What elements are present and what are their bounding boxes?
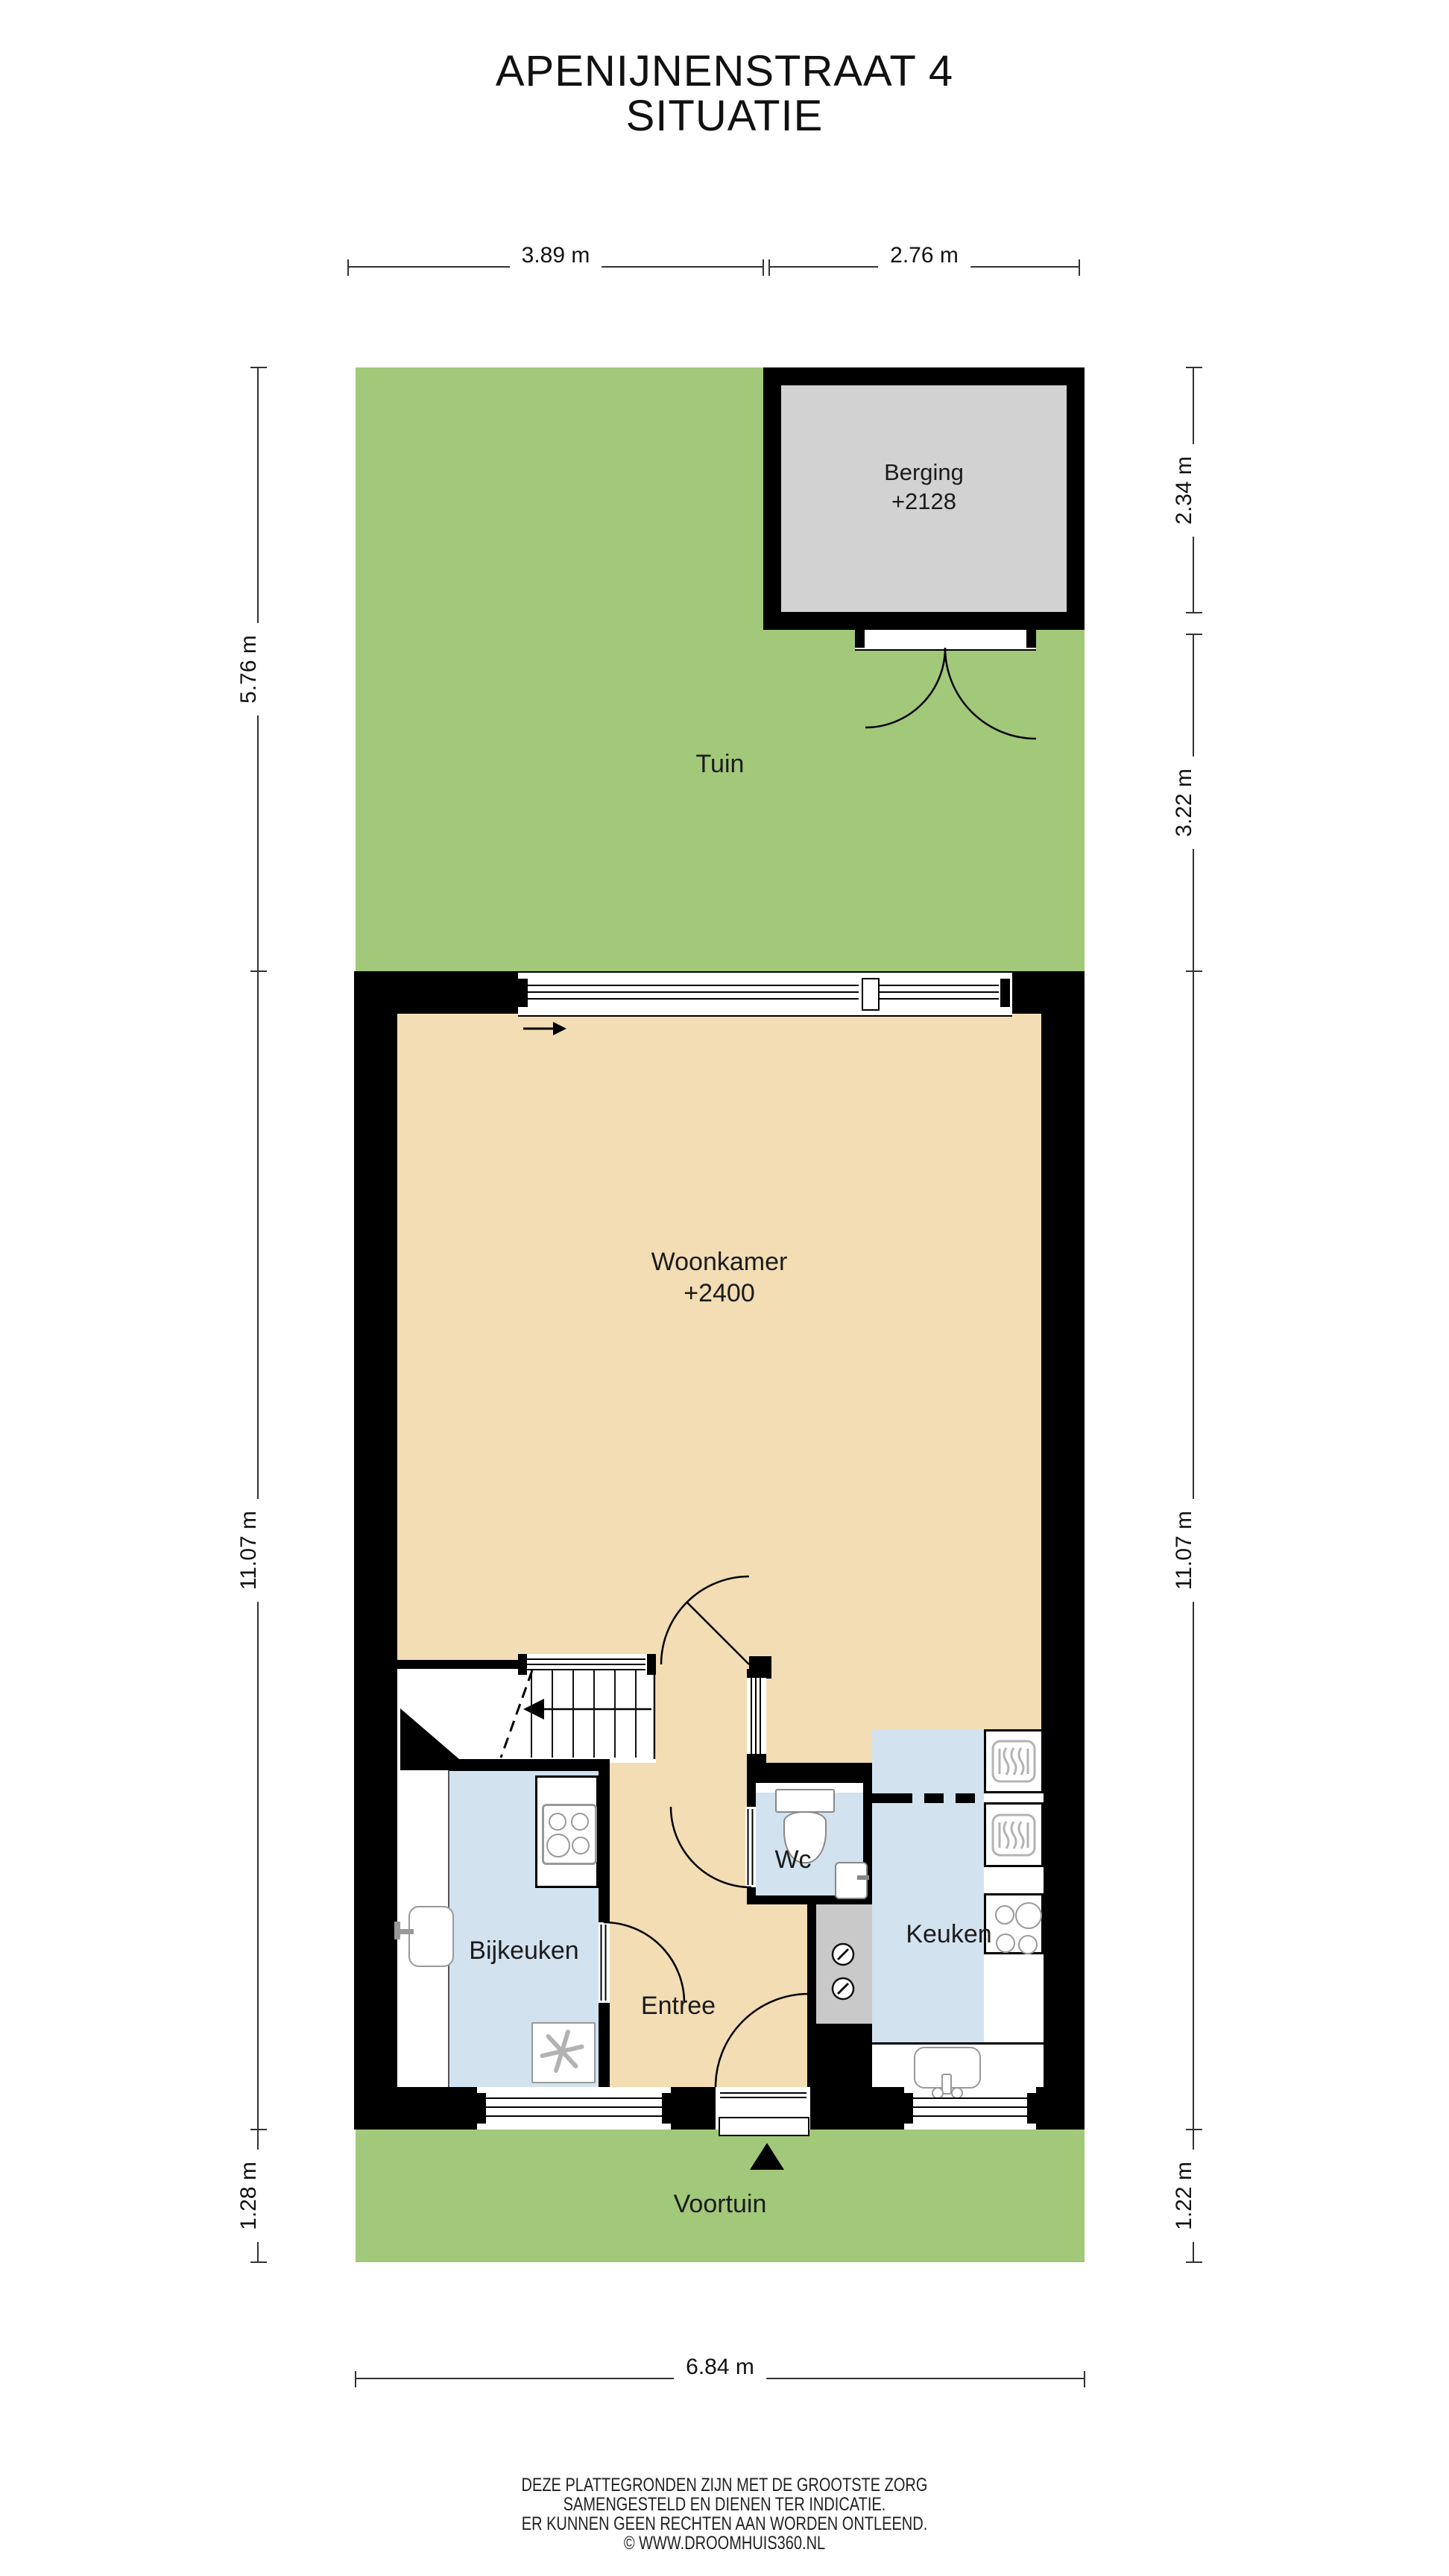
entree-floor — [610, 1763, 747, 2087]
interior-window-cap-left — [518, 1654, 527, 1675]
bijkeuken-tap — [399, 1929, 414, 1934]
bijkeuken-wall-lower — [599, 2003, 610, 2087]
oven-lower — [984, 1802, 1044, 1867]
dim-top-1-label: 3.89 m — [510, 243, 602, 268]
dim-left-3: 1.28 m — [257, 2130, 259, 2262]
bijkeuken-hob-burner-icon — [546, 1834, 570, 1857]
ventilation-box — [531, 2022, 596, 2083]
footer-disclaimer-line3: ER KUNNEN GEEN RECHTEN AAN WORDEN ONTLEE… — [145, 2515, 1304, 2534]
dim-right-3: 11.07 m — [1193, 971, 1194, 2130]
bijkeuken-hob — [542, 1804, 597, 1865]
bijkeuken-door-leaf — [599, 1922, 610, 2003]
bijkeuken-window-cap-left — [477, 2093, 486, 2124]
keuken-window-cap-right — [1027, 2093, 1036, 2124]
footer-disclaimer-line1: DEZE PLATTEGRONDEN ZIJN MET DE GROOTSTE … — [145, 2476, 1304, 2495]
label-tuin: Tuin — [356, 748, 1085, 780]
dim-top-2-label: 2.76 m — [878, 243, 970, 268]
hall-floor — [656, 1660, 749, 1763]
dim-top-1: 3.89 m — [348, 266, 763, 268]
wall-right — [1041, 971, 1085, 2130]
wc-sink-icon — [835, 1862, 868, 1899]
dim-left-1-label: 5.76 m — [236, 623, 262, 716]
sliding-door-mullion — [862, 978, 880, 1011]
wall-block-below-meter — [807, 2024, 872, 2087]
dim-right-2-label: 3.22 m — [1172, 757, 1197, 849]
label-keuken: Keuken — [880, 1919, 1018, 1950]
keuken-sink-handle — [951, 2087, 963, 2099]
wc-door-leaf — [745, 1807, 756, 1887]
staircase-area — [397, 1669, 656, 1759]
dim-right-1: 2.34 m — [1193, 367, 1194, 613]
label-berging-name: Berging — [781, 458, 1067, 487]
label-wc: Wc — [756, 1844, 830, 1875]
interior-window-cap-right — [647, 1654, 656, 1675]
dim-left-2: 11.07 m — [257, 971, 259, 2130]
bijkeuken-wall-upper — [599, 1770, 610, 1922]
dim-bottom-1: 6.84 m — [356, 2378, 1085, 2379]
hall-floor-strip — [766, 1729, 872, 1763]
wall-top-right-corner — [1012, 971, 1085, 1014]
hall-window-cap-top — [747, 1669, 766, 1678]
bijkeuken-hob-burner-icon — [549, 1813, 566, 1831]
dim-left-3-label: 1.28 m — [236, 2150, 262, 2242]
label-bijkeuken: Bijkeuken — [449, 1935, 599, 1966]
dim-right-4-label: 1.22 m — [1172, 2150, 1197, 2242]
oven-upper — [984, 1729, 1044, 1793]
keuken-window-cap-left — [904, 2093, 913, 2124]
keuken-window — [904, 2087, 1036, 2130]
front-door-leaf — [718, 2090, 809, 2100]
stairs-bottom-wall — [400, 1759, 610, 1771]
label-entree: Entree — [610, 1990, 747, 2021]
sliding-door-cap-left — [518, 979, 528, 1007]
label-voortuin: Voortuin — [356, 2188, 1085, 2220]
footer-disclaimer-line2: SAMENGESTELD EN DIENEN TER INDICATIE. — [145, 2495, 1304, 2514]
wall-top-left — [354, 971, 518, 1014]
meter-cabinet — [816, 1904, 872, 2024]
wall-left — [354, 971, 397, 2130]
wc-wall-top — [747, 1763, 872, 1783]
label-woonkamer: Woonkamer +2400 — [397, 1246, 1041, 1309]
berging-door-cap-left — [855, 628, 865, 648]
woonkamer-floor — [397, 1014, 1041, 1660]
footer-copyright: © WWW.DROOMHUIS360.NL — [145, 2534, 1304, 2553]
dim-left-2-label: 11.07 m — [236, 1499, 262, 1602]
hall-vertical-window — [747, 1669, 766, 1763]
bijkeuken-hob-burner-icon — [572, 1837, 590, 1854]
keuken-hob-burner-icon — [1018, 1935, 1038, 1954]
wc-sink-tap — [857, 1875, 869, 1880]
bijkeuken-window-cap-right — [662, 2093, 671, 2124]
dim-left-1: 5.76 m — [257, 367, 259, 971]
entrance-triangle-icon — [750, 2143, 784, 2170]
bijkeuken-sink-icon — [408, 1906, 454, 1967]
dim-right-4: 1.22 m — [1193, 2130, 1194, 2262]
entree-floor-right — [747, 1904, 807, 2087]
berging-door-sill — [855, 628, 1036, 651]
front-door-step — [719, 2117, 809, 2136]
bijkeuken-window — [477, 2087, 671, 2130]
dim-right-2: 3.22 m — [1193, 634, 1194, 971]
label-woonkamer-level: +2400 — [397, 1278, 1041, 1309]
dim-right-3-label: 11.07 m — [1172, 1499, 1197, 1602]
dim-bottom-1-label: 6.84 m — [674, 2355, 766, 2380]
label-berging-level: +2128 — [781, 487, 1067, 516]
meter-cabinet-wall — [807, 1904, 816, 2024]
keuken-hob-burner-icon — [1015, 1902, 1042, 1929]
bijkeuken-hob-burner-icon — [571, 1813, 589, 1831]
woonkamer-floor-lower — [766, 1660, 1041, 1729]
berging-door-cap-right — [1026, 628, 1036, 648]
page-subtitle: SITUATIE — [0, 94, 1449, 139]
dim-top-2: 2.76 m — [769, 266, 1079, 268]
keuken-floor — [872, 1729, 984, 2042]
toilet-tank-icon — [775, 1789, 835, 1813]
wc-wall-left-a — [747, 1783, 756, 1807]
dim-right-1-label: 2.34 m — [1172, 444, 1197, 537]
page-title: APENIJNENSTRAAT 4 — [0, 49, 1449, 94]
label-berging: Berging +2128 — [781, 458, 1067, 516]
keuken-sink-handle — [932, 2087, 944, 2099]
interior-window — [518, 1654, 656, 1675]
keuken-wall-stub — [872, 1793, 893, 1803]
sliding-door-cap-right — [1000, 979, 1010, 1007]
garden-sliding-door — [518, 971, 1012, 1017]
label-woonkamer-name: Woonkamer — [397, 1246, 1041, 1278]
hall-window-cap-bottom — [747, 1754, 766, 1763]
